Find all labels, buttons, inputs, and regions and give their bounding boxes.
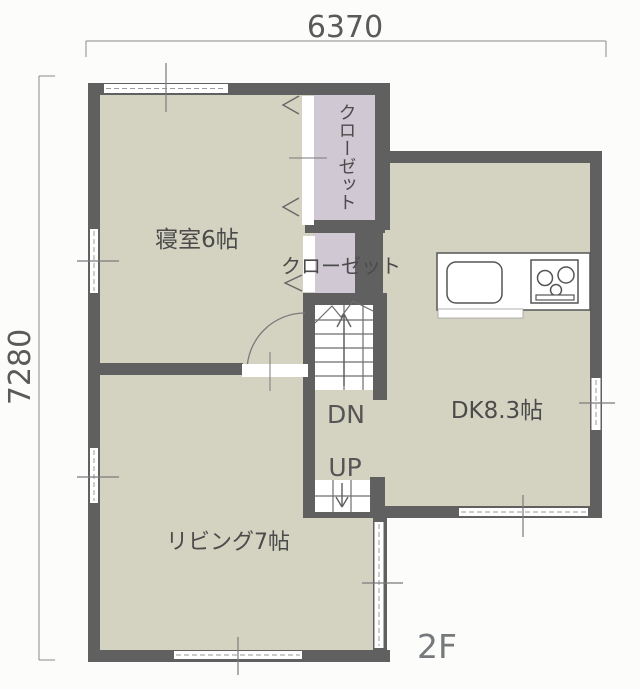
floor-plan-svg: 6370 7280	[0, 0, 640, 689]
living-label: リビング7帖	[166, 530, 290, 555]
counter-ledge	[438, 309, 523, 318]
sink-icon	[447, 262, 502, 303]
floor-plan-page: 6370 7280	[0, 0, 640, 689]
dim-left-label: 7280	[3, 329, 38, 405]
wall-left	[88, 83, 100, 662]
dim-top-label: 6370	[307, 10, 383, 45]
floor-level-label: 2F	[417, 627, 457, 666]
stove-icon	[531, 260, 578, 303]
dk-floor	[373, 151, 602, 518]
stairs-down-label: DN	[327, 400, 365, 429]
dk-label: DK8.3帖	[451, 398, 543, 424]
wall-dk-top	[375, 151, 602, 163]
stairs-up-label: UP	[328, 453, 361, 482]
bedroom-label: 寝室6帖	[155, 227, 239, 253]
closet-top-door	[302, 96, 314, 225]
wall-stair-west	[303, 293, 315, 518]
kitchen-counter	[437, 253, 590, 318]
wall-stair-east-upper	[373, 293, 387, 400]
wall-dk-right	[590, 151, 602, 518]
wall-bedroom-living-divider	[100, 363, 243, 375]
stairs-up	[315, 480, 370, 512]
closet-small-label: クローゼット	[281, 254, 401, 278]
stairs-down	[315, 301, 373, 390]
closet-top-label: クローゼット	[336, 103, 357, 211]
left-dimension	[39, 76, 55, 660]
